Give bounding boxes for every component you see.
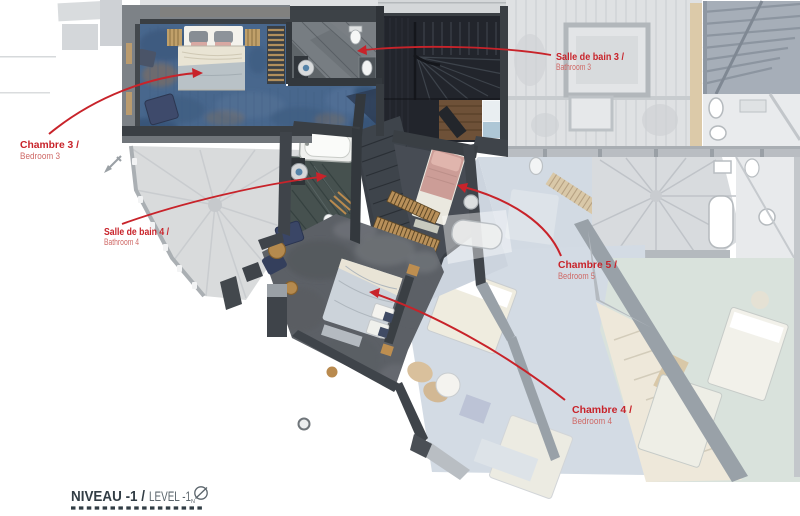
svg-text:NIVEAU -1 /: NIVEAU -1 / — [71, 489, 145, 505]
svg-text:Bathroom 3: Bathroom 3 — [556, 62, 591, 72]
svg-text:Bathroom 4: Bathroom 4 — [104, 237, 139, 247]
svg-text:Chambre 3 /: Chambre 3 / — [20, 139, 79, 151]
svg-text:LEVEL -1: LEVEL -1 — [149, 489, 191, 504]
svg-text:Chambre 4 /: Chambre 4 / — [572, 404, 632, 416]
svg-text:Bedroom 4: Bedroom 4 — [572, 416, 612, 426]
svg-text:N: N — [191, 499, 195, 505]
svg-text:Bedroom 3: Bedroom 3 — [20, 151, 60, 161]
svg-text:Bedroom 5: Bedroom 5 — [558, 271, 595, 281]
svg-text:Chambre 5 /: Chambre 5 / — [558, 259, 617, 271]
